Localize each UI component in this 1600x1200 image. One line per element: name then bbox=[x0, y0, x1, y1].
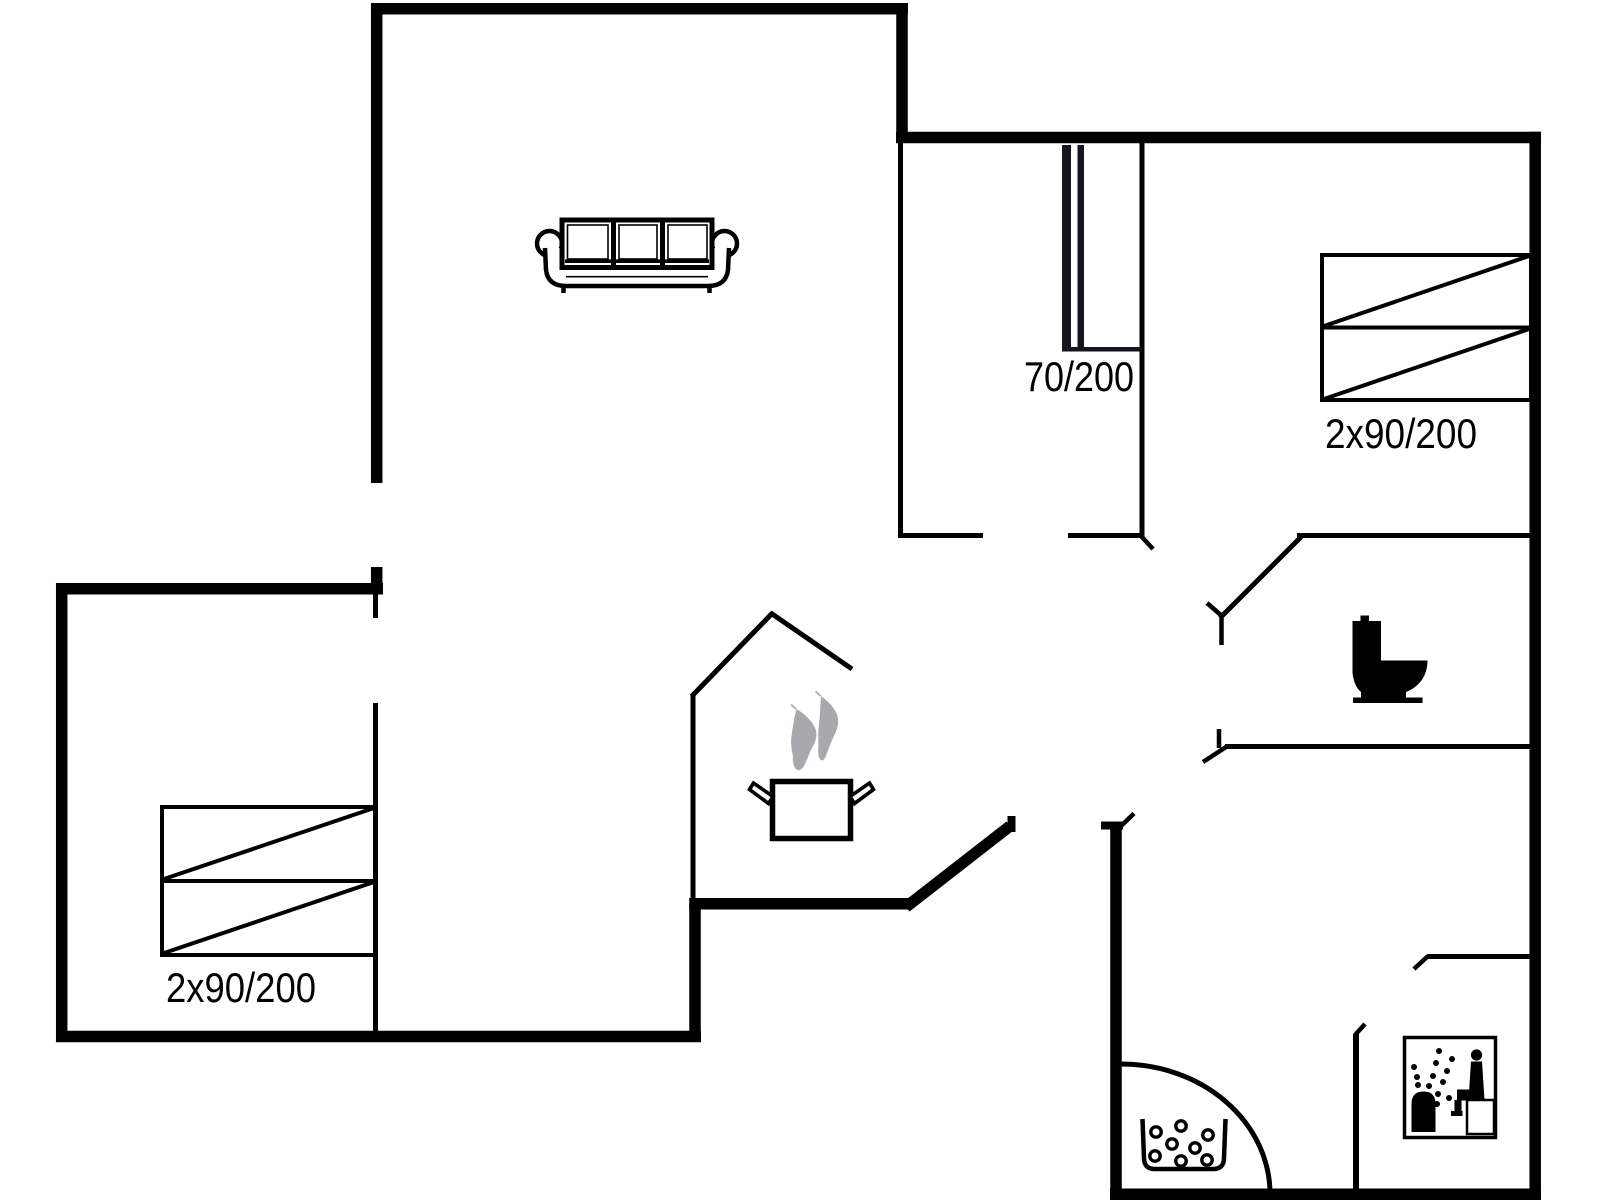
svg-text:2x90/200: 2x90/200 bbox=[1325, 410, 1477, 457]
svg-text:70/200: 70/200 bbox=[1024, 353, 1134, 400]
svg-text:2x90/200: 2x90/200 bbox=[166, 964, 316, 1011]
